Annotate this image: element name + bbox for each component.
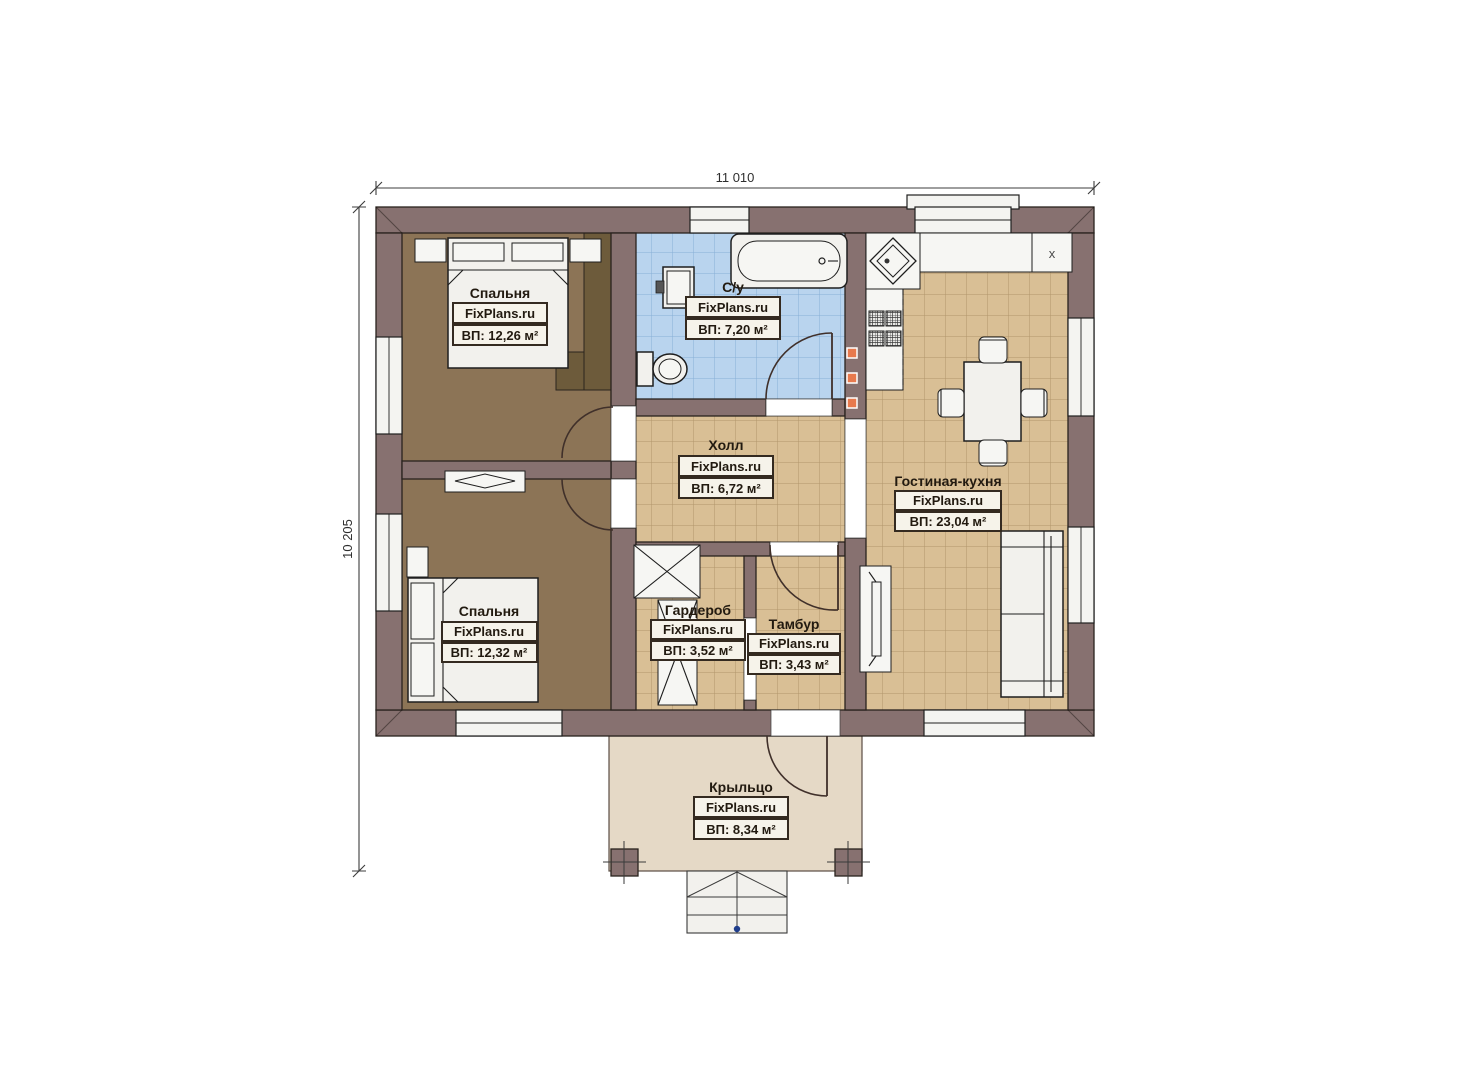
- wall-wardrobe-vestibule: [744, 556, 756, 618]
- entry-steps: [687, 871, 787, 933]
- watermark-text: FixPlans.ru: [759, 636, 829, 651]
- watermark-text: FixPlans.ru: [706, 800, 776, 815]
- wall-kitchen-top: [845, 233, 866, 419]
- exterior-wall-right: [1068, 233, 1094, 710]
- chair-icon: [979, 440, 1007, 466]
- floor-plan-page: x Спальня: [0, 0, 1473, 1080]
- pillow-icon: [512, 243, 563, 261]
- floor-plan-canvas: x Спальня: [0, 0, 1473, 1080]
- pillow-icon: [453, 243, 504, 261]
- exterior-wall-left: [376, 233, 402, 710]
- wall-bedrooms-top: [611, 233, 636, 406]
- wall-hall-south-right: [838, 542, 845, 556]
- wall-bath-south-left: [636, 399, 766, 416]
- watermark-text: FixPlans.ru: [465, 306, 535, 321]
- toilet-icon: [637, 352, 687, 386]
- room-name: Гостиная-кухня: [894, 473, 1001, 489]
- dimension-top: 11 010: [370, 170, 1100, 195]
- bedroom1-door-opening: [611, 406, 636, 461]
- pillow-icon: [411, 643, 434, 696]
- vent-markers: [847, 348, 857, 408]
- area-text: ВП: 6,72 м²: [691, 481, 761, 496]
- dimension-width-label: 11 010: [716, 170, 755, 185]
- room-name: Крыльцо: [709, 779, 773, 795]
- window-left-bedroom1: [376, 337, 402, 434]
- fridge-label: x: [1049, 246, 1056, 261]
- fridge-icon: x: [1032, 233, 1072, 272]
- nightstand-icon: [415, 239, 446, 262]
- window-top-kitchen: [907, 195, 1019, 233]
- room-name: Холл: [708, 437, 743, 453]
- window-bottom-bedroom2: [456, 710, 562, 736]
- dimension-height-label: 10 205: [340, 519, 355, 559]
- area-text: ВП: 3,52 м²: [663, 643, 733, 658]
- chair-icon: [979, 337, 1007, 363]
- watermark-text: FixPlans.ru: [691, 459, 761, 474]
- watermark-text: FixPlans.ru: [913, 493, 983, 508]
- chair-icon: [938, 389, 964, 417]
- nightstand-icon: [407, 547, 428, 577]
- window-bottom-living: [924, 710, 1025, 736]
- dresser-icon: [445, 471, 525, 492]
- wall-bedrooms-stub: [611, 461, 636, 479]
- steps-direction-dot: [734, 926, 740, 932]
- window-right-living: [1068, 527, 1094, 623]
- room-name: С/у: [722, 279, 744, 295]
- room-name: Гардероб: [665, 602, 732, 618]
- bedroom2-door-opening: [611, 479, 636, 528]
- pillow-icon: [411, 583, 434, 639]
- hall-kitchen-passage: [845, 419, 866, 538]
- wall-wardrobe-vestibule-stub: [744, 700, 756, 710]
- tv-stand-icon: [860, 566, 891, 672]
- kitchen-sink-icon: [866, 233, 920, 289]
- area-text: ВП: 12,32 м²: [451, 645, 528, 660]
- area-text: ВП: 8,34 м²: [706, 822, 776, 837]
- area-text: ВП: 23,04 м²: [910, 514, 987, 529]
- watermark-text: FixPlans.ru: [454, 624, 524, 639]
- window-top-bath: [690, 207, 749, 233]
- nightstand-icon: [570, 239, 601, 262]
- area-text: ВП: 3,43 м²: [759, 657, 829, 672]
- window-left-bedroom2: [376, 514, 402, 611]
- room-name: Спальня: [470, 285, 530, 301]
- area-text: ВП: 12,26 м²: [462, 328, 539, 343]
- bathroom-door-opening: [766, 399, 832, 416]
- bathtub-icon: [731, 234, 847, 288]
- chair-icon: [1021, 389, 1047, 417]
- watermark-text: FixPlans.ru: [698, 300, 768, 315]
- sofa-icon: [1001, 531, 1063, 697]
- room-label-wardrobe: Гардероб FixPlans.ru ВП: 3,52 м²: [651, 602, 745, 660]
- room-name: Тамбур: [769, 616, 820, 632]
- window-right-kitchen: [1068, 318, 1094, 416]
- vestibule-door-opening: [770, 542, 838, 556]
- dimension-left: 10 205: [340, 201, 366, 877]
- room-name: Спальня: [459, 603, 519, 619]
- entry-door-opening: [771, 710, 840, 736]
- watermark-text: FixPlans.ru: [663, 622, 733, 637]
- wall-bedrooms-bottom: [611, 528, 636, 710]
- room-label-living-kitchen: Гостиная-кухня FixPlans.ru ВП: 23,04 м²: [894, 473, 1001, 531]
- wall-bath-south-right: [832, 399, 845, 416]
- area-text: ВП: 7,20 м²: [698, 322, 768, 337]
